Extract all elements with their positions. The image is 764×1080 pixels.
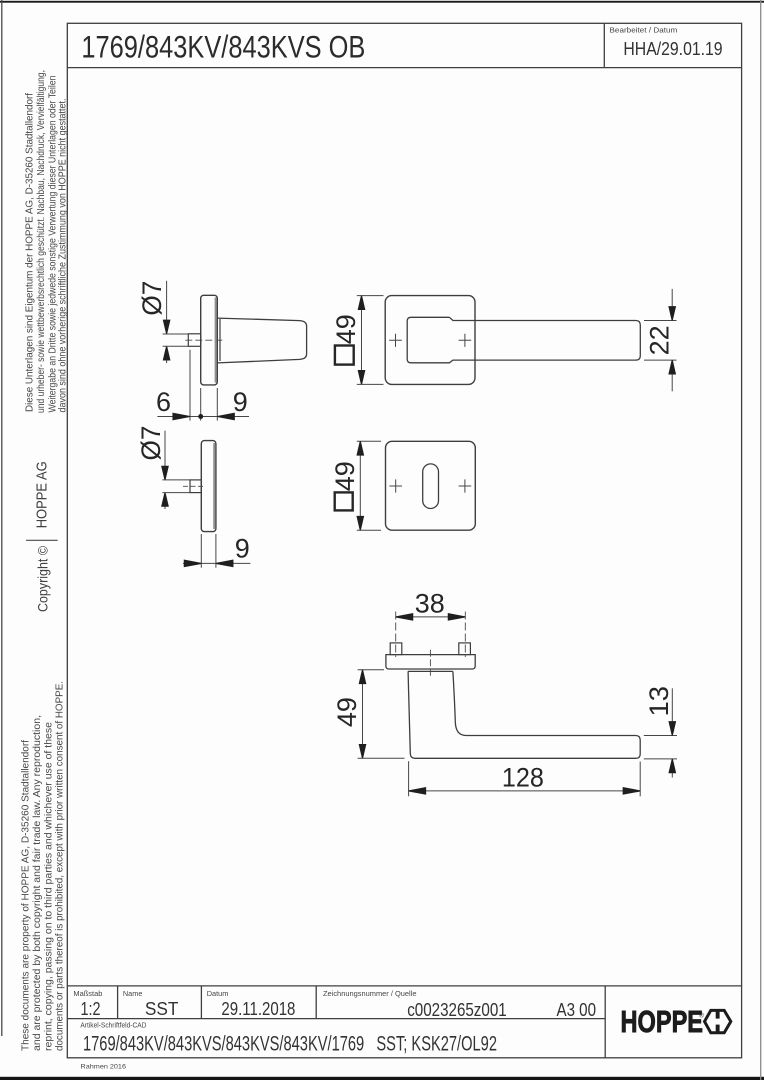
svg-text:and are protected by both copy: and are protected by both copyright and … <box>32 715 43 1051</box>
svg-text:Bearbeitet / Datum: Bearbeitet / Datum <box>610 25 678 34</box>
svg-text:Artikel-Schriftfeld-CAD: Artikel-Schriftfeld-CAD <box>80 1021 146 1030</box>
svg-text:A3 00: A3 00 <box>557 999 597 1020</box>
svg-text:22: 22 <box>645 325 675 355</box>
svg-text:reprint, copying, passing on t: reprint, copying, passing on to third pa… <box>43 722 54 1051</box>
svg-text:38: 38 <box>415 589 445 619</box>
svg-text:Zeichnungsnummer / Quelle: Zeichnungsnummer / Quelle <box>323 989 417 998</box>
svg-text:13: 13 <box>644 686 674 717</box>
svg-text:Ø7: Ø7 <box>136 426 166 461</box>
svg-text:Name: Name <box>123 989 142 998</box>
svg-text:29.11.2018: 29.11.2018 <box>221 998 295 1019</box>
svg-text:Ø7: Ø7 <box>137 281 167 316</box>
svg-text:9: 9 <box>235 534 250 564</box>
svg-text:HHA/29.01.19: HHA/29.01.19 <box>623 39 722 59</box>
svg-text:c0023265z001: c0023265z001 <box>407 999 507 1020</box>
svg-text:®: ® <box>699 1012 704 1020</box>
svg-text:49: 49 <box>330 461 360 491</box>
svg-text:49: 49 <box>331 314 361 344</box>
svg-text:These documents are property o: These documents are property of HOPPE AG… <box>21 740 32 1051</box>
svg-text:1769/843KV/843KVS/843KVS/843KV: 1769/843KV/843KVS/843KVS/843KV/1769 SST;… <box>83 1032 497 1055</box>
svg-text:und urheber- sowie wettbewerbs: und urheber- sowie wettbewerbsrechtlich … <box>36 70 47 413</box>
svg-text:1:2: 1:2 <box>81 998 101 1019</box>
svg-text:documents or parts thereof is: documents or parts thereof is prohibited… <box>55 681 66 1051</box>
svg-text:Copyright ©: Copyright © <box>35 545 51 612</box>
svg-text:SST: SST <box>145 998 179 1019</box>
svg-text:Maßstab: Maßstab <box>73 989 102 998</box>
svg-text:HOPPE: HOPPE <box>621 1005 704 1039</box>
svg-text:6: 6 <box>156 387 171 417</box>
svg-text:1769/843KV/843KVS OB: 1769/843KV/843KVS OB <box>81 29 365 65</box>
svg-text:49: 49 <box>332 697 362 727</box>
svg-text:davon sind ohne vorherige schr: davon sind ohne vorherige schriftliche Z… <box>58 99 69 413</box>
svg-text:Rahmen 2016: Rahmen 2016 <box>81 1064 127 1071</box>
svg-text:HOPPE AG: HOPPE AG <box>35 461 51 528</box>
svg-text:Datum: Datum <box>207 989 229 998</box>
svg-text:9: 9 <box>233 387 248 417</box>
svg-text:Diese Unterlagen sind Eigentum: Diese Unterlagen sind Eigentum der HOPPE… <box>25 93 36 412</box>
svg-text:128: 128 <box>502 763 544 793</box>
